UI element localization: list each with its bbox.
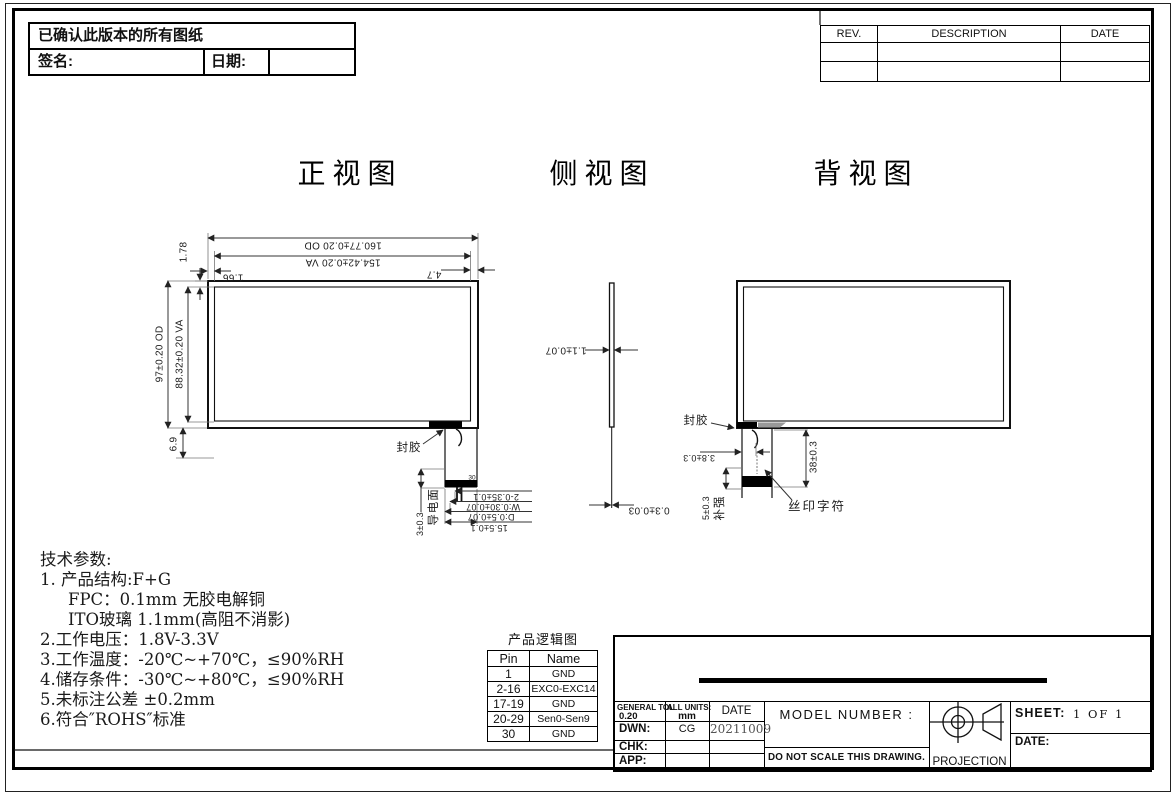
silkscreen-label: 丝印字符: [788, 496, 846, 515]
front-seal-bar: [429, 422, 462, 429]
table-row: 17-19 GND: [488, 697, 598, 712]
front-seal-label: 封胶: [397, 439, 422, 455]
date-header: DATE: [709, 705, 764, 717]
dim-glass-thickness: 1.1±0.07: [545, 345, 586, 356]
rev-col-header: REV.: [821, 26, 878, 43]
description-cell: [878, 62, 1061, 81]
drawing-page: 已确认此版本的所有图纸 签名: 日期: REV. DESCRIPTION DAT…: [0, 0, 1176, 795]
sheet-value: 1 OF 1: [1073, 707, 1124, 721]
table-row: 30 GND: [488, 727, 598, 742]
name-cell: Sen0-Sen9: [530, 712, 598, 727]
tech-param-line: 2.工作电压：1.8V-3.3V: [40, 630, 480, 650]
sheet-label: SHEET:: [1015, 706, 1065, 720]
back-dimension-lines: [700, 423, 806, 500]
name-col-header: Name: [530, 651, 598, 667]
sign-label: 签名:: [30, 50, 205, 74]
conductive-surface-label: 导电面: [425, 488, 441, 526]
dim-od-height: 97±0.20 OD: [155, 326, 166, 383]
pin-cell: 2-16: [488, 682, 530, 697]
date-value-cell: [270, 50, 354, 74]
dim-pin-pitch: 2-0.35±0.1: [473, 492, 519, 502]
dim-tail-length: 38±0.3: [809, 441, 820, 473]
dim-od-width: 160.77±0.20 OD: [304, 240, 382, 251]
back-seal-label: 封胶: [684, 412, 709, 428]
stiffener-label: 补强: [711, 496, 727, 521]
table-row: 1 GND: [488, 667, 598, 682]
dwn-value: CG: [665, 723, 709, 735]
title-block: GENERAL TOL 0.20 ALL UNITS: mm DATE DWN:…: [613, 635, 1152, 772]
back-view-outline: [737, 281, 1010, 498]
date-label: 日期:: [205, 50, 270, 74]
pin-table-title: 产品逻辑图: [487, 629, 599, 648]
dim-va-height: 88.32±0.20 VA: [175, 319, 186, 388]
dwn-date: 20211009: [710, 722, 764, 736]
front-view-title: 正视图: [297, 152, 402, 192]
pin-30-label: 30: [468, 475, 475, 482]
dim-tail-width: 15.5±0.1: [470, 523, 507, 533]
side-dimension-lines: [585, 350, 638, 505]
tech-param-line: 5.未标注公差 ±0.2mm: [40, 690, 480, 710]
title-block-divider: [615, 701, 1150, 702]
revision-table: REV. DESCRIPTION DATE: [820, 25, 1150, 82]
name-cell: GND: [530, 697, 598, 712]
back-stiffener-bar: [742, 476, 772, 487]
pin-cell: 1: [488, 667, 530, 682]
tech-param-line: 6.符合″ROHS″标准: [40, 710, 480, 730]
back-tail-flap: [758, 423, 786, 428]
pin-col-header: Pin: [488, 651, 530, 667]
chk-label: CHK:: [619, 741, 648, 753]
description-cell: [878, 43, 1061, 62]
dim-trace-depth: D:0.5±0.07: [468, 512, 515, 522]
tech-param-line: 1. 产品结构:F+G: [40, 570, 480, 590]
dim-fpc-thickness: 0.3±0.03: [628, 505, 669, 516]
confirm-note: 已确认此版本的所有图纸: [30, 24, 354, 50]
back-view-title: 背视图: [813, 152, 918, 192]
front-view-outline: [208, 281, 478, 487]
units-value: mm: [665, 711, 709, 722]
dwn-label: DWN:: [619, 723, 650, 735]
dim-stiffener: 5±0.3: [701, 496, 711, 520]
dim-va-width: 154.42±0.20 VA: [305, 257, 380, 268]
confirm-note-box: 已确认此版本的所有图纸 签名: 日期:: [28, 22, 356, 76]
tech-param-line: 4.储存条件：-30℃~+80℃，≤90%RH: [40, 670, 480, 690]
general-tol-value: 0.20: [619, 711, 638, 722]
back-seal-bar: [737, 422, 757, 428]
dim-trace-width: W:0.30±0.07: [466, 502, 520, 512]
no-scale-note: DO NOT SCALE THIS DRAWING.: [764, 752, 929, 763]
name-cell: GND: [530, 667, 598, 682]
date-cell: [1061, 62, 1149, 81]
pin-cell: 20-29: [488, 712, 530, 727]
dim-right-margin: 4.7: [427, 269, 442, 280]
pin-cell: 17-19: [488, 697, 530, 712]
side-view-title: 侧视图: [549, 152, 654, 192]
dim-tail-offset: 3±0.3: [415, 512, 425, 536]
rev-cell: [821, 62, 878, 81]
pin-logic-table: 产品逻辑图 Pin Name 1 GND 2-16 EXC0-EXC14 17-…: [487, 629, 599, 742]
title-block-date-label: DATE:: [1015, 736, 1049, 748]
table-row: 20-29 Sen0-Sen9: [488, 712, 598, 727]
back-extension-lines: [726, 430, 808, 489]
table-row: 2-16 EXC0-EXC14: [488, 682, 598, 697]
projection-label: PROJECTION: [929, 756, 1010, 768]
date-col-header: DATE: [1061, 26, 1149, 43]
tech-params-title: 技术参数:: [40, 550, 480, 570]
dim-bottom-margin: 6.9: [169, 437, 180, 452]
description-col-header: DESCRIPTION: [878, 26, 1061, 43]
dim-left-margin: 1.66: [223, 272, 244, 283]
name-cell: GND: [530, 727, 598, 742]
name-cell: EXC0-EXC14: [530, 682, 598, 697]
tech-params-block: 技术参数: 1. 产品结构:F+G FPC：0.1mm 无胶电解铜 ITO玻璃 …: [40, 550, 480, 730]
model-number-rule: [699, 678, 1047, 683]
side-view-outline: [610, 283, 615, 508]
dim-top-margin: 1.78: [179, 242, 190, 263]
dim-hook-offset: 3.8±0.3: [683, 453, 715, 463]
date-cell: [1061, 43, 1149, 62]
tech-param-line: 3.工作温度：-20℃~+70℃，≤90%RH: [40, 650, 480, 670]
rev-cell: [821, 43, 878, 62]
model-number-label: MODEL NUMBER :: [764, 707, 929, 722]
pin-cell: 30: [488, 727, 530, 742]
tech-param-line: ITO玻璃 1.1mm(高阻不消影): [40, 610, 480, 630]
tech-param-line: FPC：0.1mm 无胶电解铜: [40, 590, 480, 610]
app-label: APP:: [619, 755, 646, 767]
